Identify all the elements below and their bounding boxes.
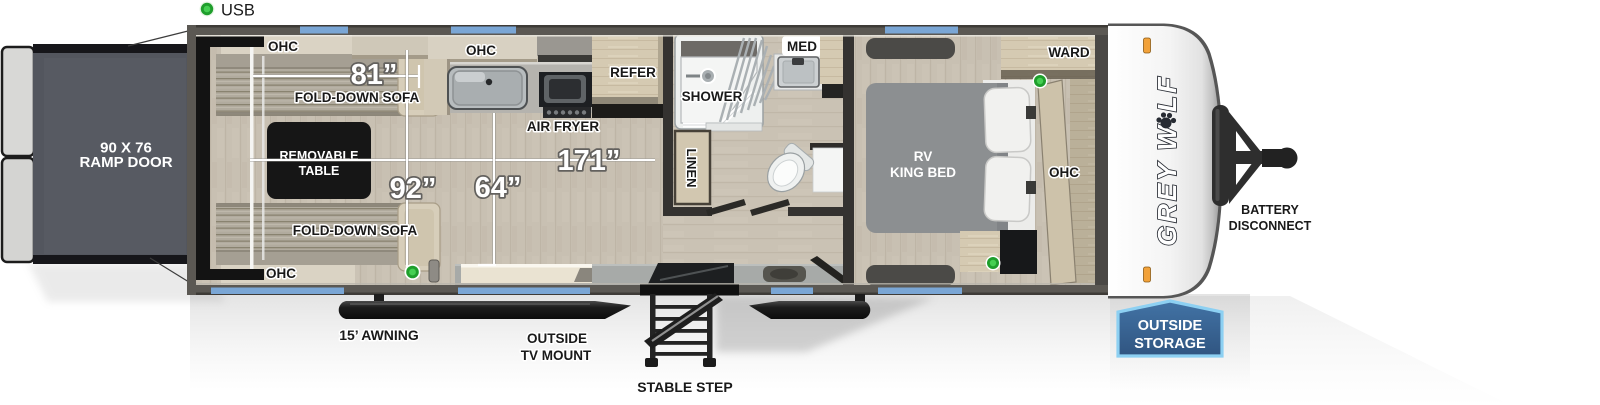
svg-text:STORAGE: STORAGE — [1134, 336, 1206, 352]
svg-text:LF: LF — [1152, 74, 1182, 112]
svg-text:RV: RV — [914, 149, 933, 164]
svg-text:15’ AWNING: 15’ AWNING — [339, 327, 419, 343]
svg-text:81”: 81” — [351, 59, 398, 91]
svg-text:TABLE: TABLE — [299, 164, 340, 178]
svg-text:OHC: OHC — [266, 266, 296, 281]
svg-text:FOLD-DOWN SOFA: FOLD-DOWN SOFA — [293, 223, 418, 238]
svg-text:OUTSIDE: OUTSIDE — [527, 331, 587, 346]
svg-text:MED: MED — [787, 39, 817, 54]
svg-text:SHOWER: SHOWER — [682, 89, 743, 104]
svg-text:92”: 92” — [390, 173, 437, 205]
svg-text:RAMP DOOR: RAMP DOOR — [79, 154, 172, 171]
svg-text:171”: 171” — [558, 145, 621, 177]
svg-text:USB: USB — [221, 2, 255, 20]
svg-text:TV MOUNT: TV MOUNT — [521, 348, 592, 363]
svg-text:WARD: WARD — [1048, 45, 1089, 60]
svg-text:AIR FRYER: AIR FRYER — [527, 119, 600, 134]
svg-text:STABLE STEP: STABLE STEP — [637, 379, 732, 395]
svg-text:OUTSIDE: OUTSIDE — [1138, 318, 1203, 334]
svg-text:64”: 64” — [475, 172, 522, 204]
svg-text:BATTERY: BATTERY — [1241, 203, 1299, 217]
svg-text:DISCONNECT: DISCONNECT — [1229, 219, 1312, 233]
svg-text:OHC: OHC — [268, 39, 298, 54]
svg-text:GREY W: GREY W — [1152, 123, 1182, 246]
svg-text:REFER: REFER — [610, 65, 656, 80]
svg-text:KING BED: KING BED — [890, 165, 956, 180]
svg-text:LINEN: LINEN — [684, 149, 699, 188]
svg-text:FOLD-DOWN SOFA: FOLD-DOWN SOFA — [295, 90, 420, 105]
svg-text:OHC: OHC — [466, 43, 496, 58]
svg-text:OHC: OHC — [1049, 165, 1079, 180]
